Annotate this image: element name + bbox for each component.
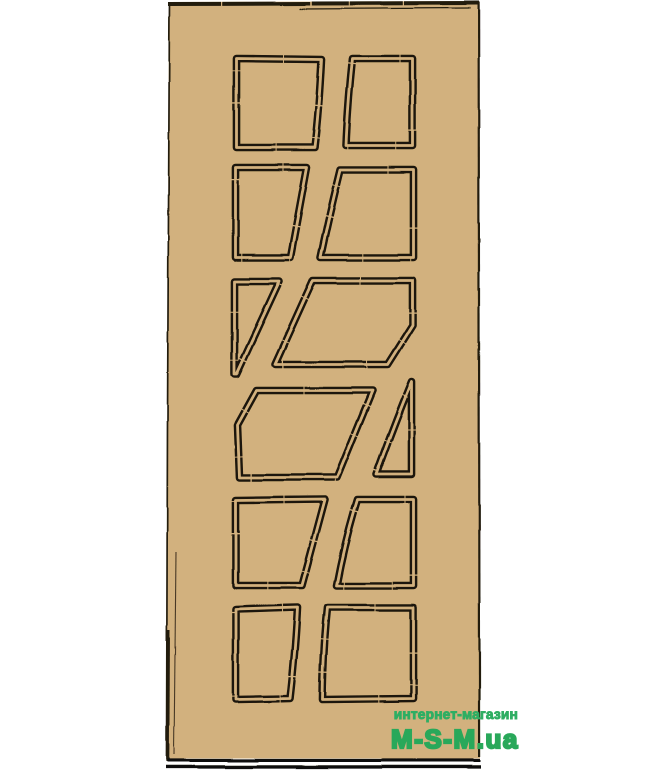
svg-text:интернет-магазин: интернет-магазин <box>394 707 518 722</box>
svg-text:M-S-M.ua: M-S-M.ua <box>391 724 519 754</box>
